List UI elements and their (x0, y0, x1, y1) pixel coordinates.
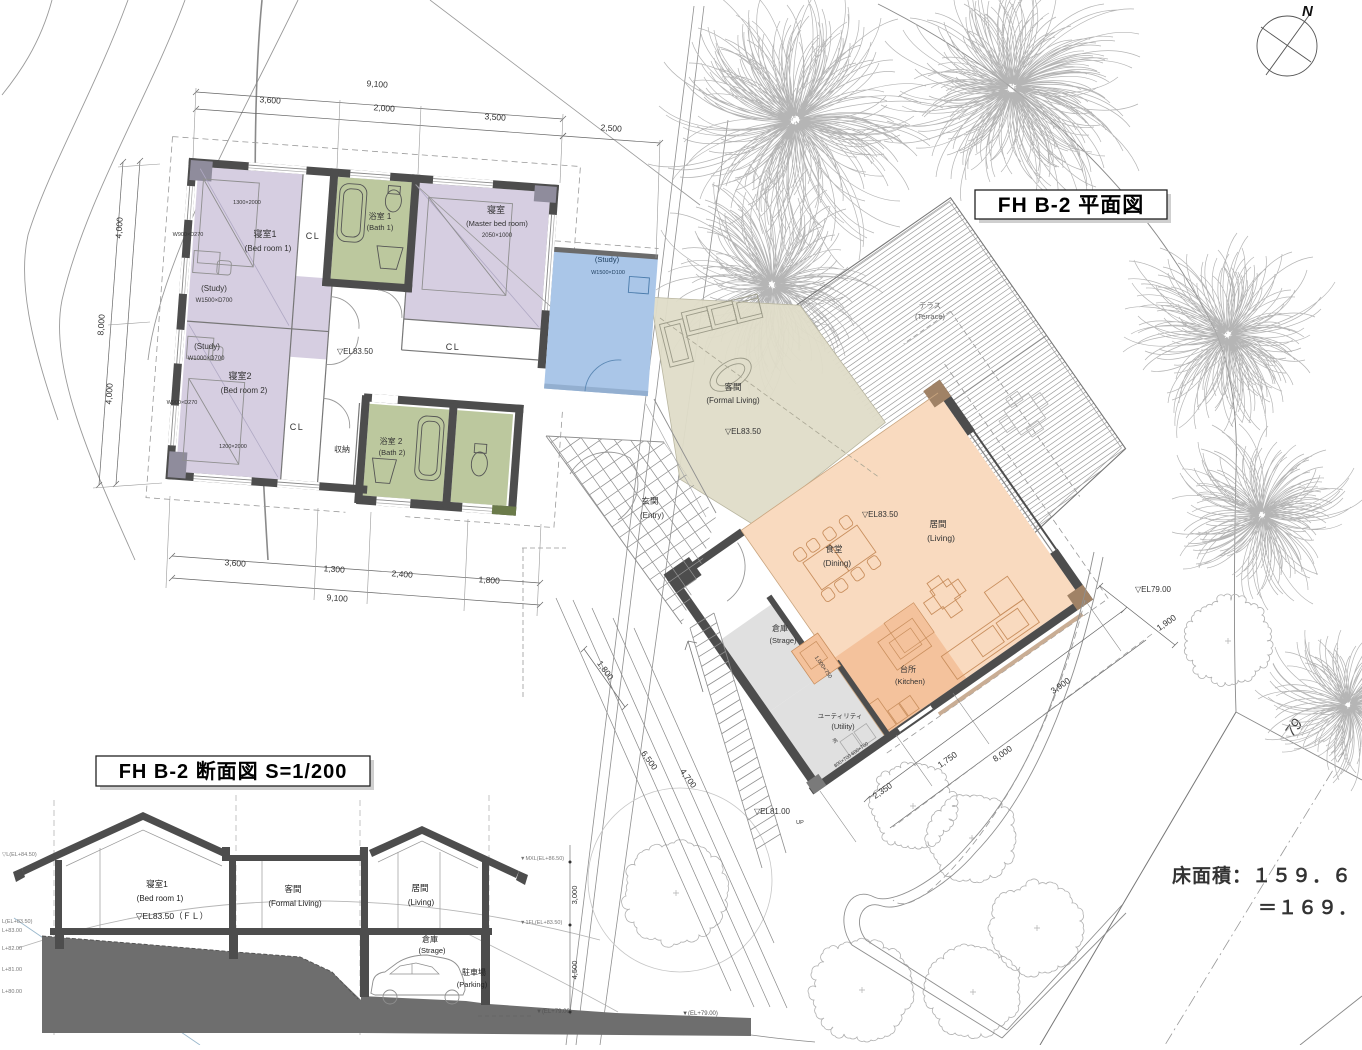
svg-text:8,000: 8,000 (95, 314, 106, 336)
svg-text:(Bed room 2): (Bed room 2) (221, 386, 268, 395)
svg-text:W1500×D700: W1500×D700 (196, 298, 234, 304)
svg-text:(Parking): (Parking) (457, 980, 488, 989)
svg-text:UP: UP (796, 820, 804, 826)
svg-text:1300×2000: 1300×2000 (233, 200, 261, 206)
svg-text:N: N (1302, 3, 1314, 20)
svg-text:▽EL83.50: ▽EL83.50 (862, 510, 899, 519)
svg-text:ユーティリティ: ユーティリティ (818, 712, 863, 720)
svg-text:▼(EL+79.00): ▼(EL+79.00) (536, 1009, 572, 1015)
svg-text:W900×D270: W900×D270 (167, 400, 198, 406)
svg-text:＝１６９．: ＝１６９． (1258, 898, 1358, 919)
svg-text:W900×D270: W900×D270 (173, 232, 204, 238)
svg-text:2,500: 2,500 (600, 122, 622, 134)
svg-text:(Master bed room): (Master bed room) (466, 219, 528, 228)
svg-text:浴室 1: 浴室 1 (369, 211, 392, 221)
svg-text:(Study): (Study) (194, 342, 220, 351)
svg-text:▽EL81.00: ▽EL81.00 (754, 807, 791, 816)
svg-text:寝室2: 寝室2 (228, 370, 251, 381)
svg-text:(Utility): (Utility) (831, 722, 855, 731)
svg-text:(Bed room 1): (Bed room 1) (245, 244, 292, 253)
svg-text:浴室 2: 浴室 2 (380, 436, 403, 446)
svg-text:L+82.00: L+82.00 (2, 946, 22, 952)
svg-text:▽EL79.00: ▽EL79.00 (1135, 585, 1172, 594)
svg-text:CL: CL (446, 342, 461, 352)
svg-text:床面積：１５９．６: 床面積：１５９．６ (1172, 864, 1352, 887)
svg-text:2,000: 2,000 (373, 102, 395, 114)
svg-text:L+81.00: L+81.00 (2, 967, 22, 973)
svg-text:倉庫: 倉庫 (772, 623, 788, 633)
svg-text:(Study): (Study) (595, 255, 620, 264)
svg-text:1200×2000: 1200×2000 (219, 444, 247, 450)
svg-text:(Entry): (Entry) (640, 511, 664, 520)
svg-text:▽EL83.50（ＦＬ）: ▽EL83.50（ＦＬ） (136, 911, 208, 921)
svg-text:4,000: 4,000 (103, 383, 114, 405)
svg-text:W1500×D100: W1500×D100 (591, 270, 625, 276)
svg-text:収納: 収納 (334, 444, 350, 454)
svg-text:CL: CL (306, 231, 321, 241)
svg-text:CL: CL (290, 422, 305, 432)
svg-text:FH B-2 断面図 S=1/200: FH B-2 断面図 S=1/200 (119, 759, 348, 783)
svg-text:9,100: 9,100 (366, 78, 388, 90)
svg-text:(Bed room 1): (Bed room 1) (137, 894, 184, 903)
svg-text:(Formal Living): (Formal Living) (706, 396, 760, 405)
svg-text:駐車場: 駐車場 (462, 967, 486, 977)
svg-text:3,600: 3,600 (259, 94, 281, 106)
svg-text:寝室1: 寝室1 (146, 879, 168, 889)
svg-text:4,000: 4,000 (113, 217, 124, 239)
svg-text:(Dining): (Dining) (823, 559, 851, 568)
svg-text:L+80.00: L+80.00 (2, 989, 22, 995)
svg-text:寝室: 寝室 (487, 204, 505, 215)
svg-text:食堂: 食堂 (825, 544, 842, 554)
svg-text:客間: 客間 (284, 884, 301, 894)
svg-text:客間: 客間 (724, 382, 741, 392)
svg-text:L+83.00: L+83.00 (2, 928, 22, 934)
svg-text:(Formal Living): (Formal Living) (268, 899, 322, 908)
svg-text:(Strage): (Strage) (769, 636, 797, 645)
svg-text:W1000×D700: W1000×D700 (188, 356, 226, 362)
svg-text:2050×1000: 2050×1000 (482, 233, 513, 239)
svg-text:居間: 居間 (411, 883, 428, 893)
svg-text:4,500: 4,500 (570, 961, 579, 980)
svg-text:▼1FL(EL+83.50): ▼1FL(EL+83.50) (520, 920, 562, 926)
svg-text:▽EL83.50: ▽EL83.50 (337, 347, 374, 356)
svg-text:(Living): (Living) (408, 898, 435, 907)
svg-text:玄関: 玄関 (641, 496, 658, 506)
svg-text:▽L(EL+84.50): ▽L(EL+84.50) (2, 852, 37, 858)
svg-text:台所: 台所 (900, 664, 916, 674)
svg-text:1,300: 1,300 (323, 563, 345, 575)
svg-text:2,400: 2,400 (391, 568, 413, 580)
svg-text:テラス: テラス (919, 301, 941, 310)
svg-text:(Bath 2): (Bath 2) (379, 448, 406, 457)
svg-text:L(EL+83.50): L(EL+83.50) (2, 919, 33, 925)
svg-text:3,600: 3,600 (224, 557, 246, 569)
svg-text:(Bath 1): (Bath 1) (367, 223, 394, 232)
svg-text:倉庫: 倉庫 (422, 934, 438, 944)
svg-text:1,800: 1,800 (478, 574, 500, 586)
svg-text:▼MXL(EL+86.50): ▼MXL(EL+86.50) (520, 856, 564, 862)
svg-text:(Kitchen): (Kitchen) (895, 677, 926, 686)
svg-text:(Living): (Living) (927, 533, 955, 543)
svg-text:(Terrace): (Terrace) (915, 312, 946, 321)
svg-text:9,100: 9,100 (326, 592, 348, 604)
svg-text:居間: 居間 (929, 519, 946, 529)
svg-text:FH B-2 平面図: FH B-2 平面図 (998, 194, 1145, 217)
svg-text:寝室1: 寝室1 (253, 228, 276, 239)
svg-text:▽EL83.50: ▽EL83.50 (725, 427, 762, 436)
svg-text:(Study): (Study) (201, 284, 227, 293)
svg-text:3,500: 3,500 (484, 111, 506, 123)
svg-text:(Strage): (Strage) (418, 946, 446, 955)
svg-text:3,000: 3,000 (570, 886, 579, 905)
